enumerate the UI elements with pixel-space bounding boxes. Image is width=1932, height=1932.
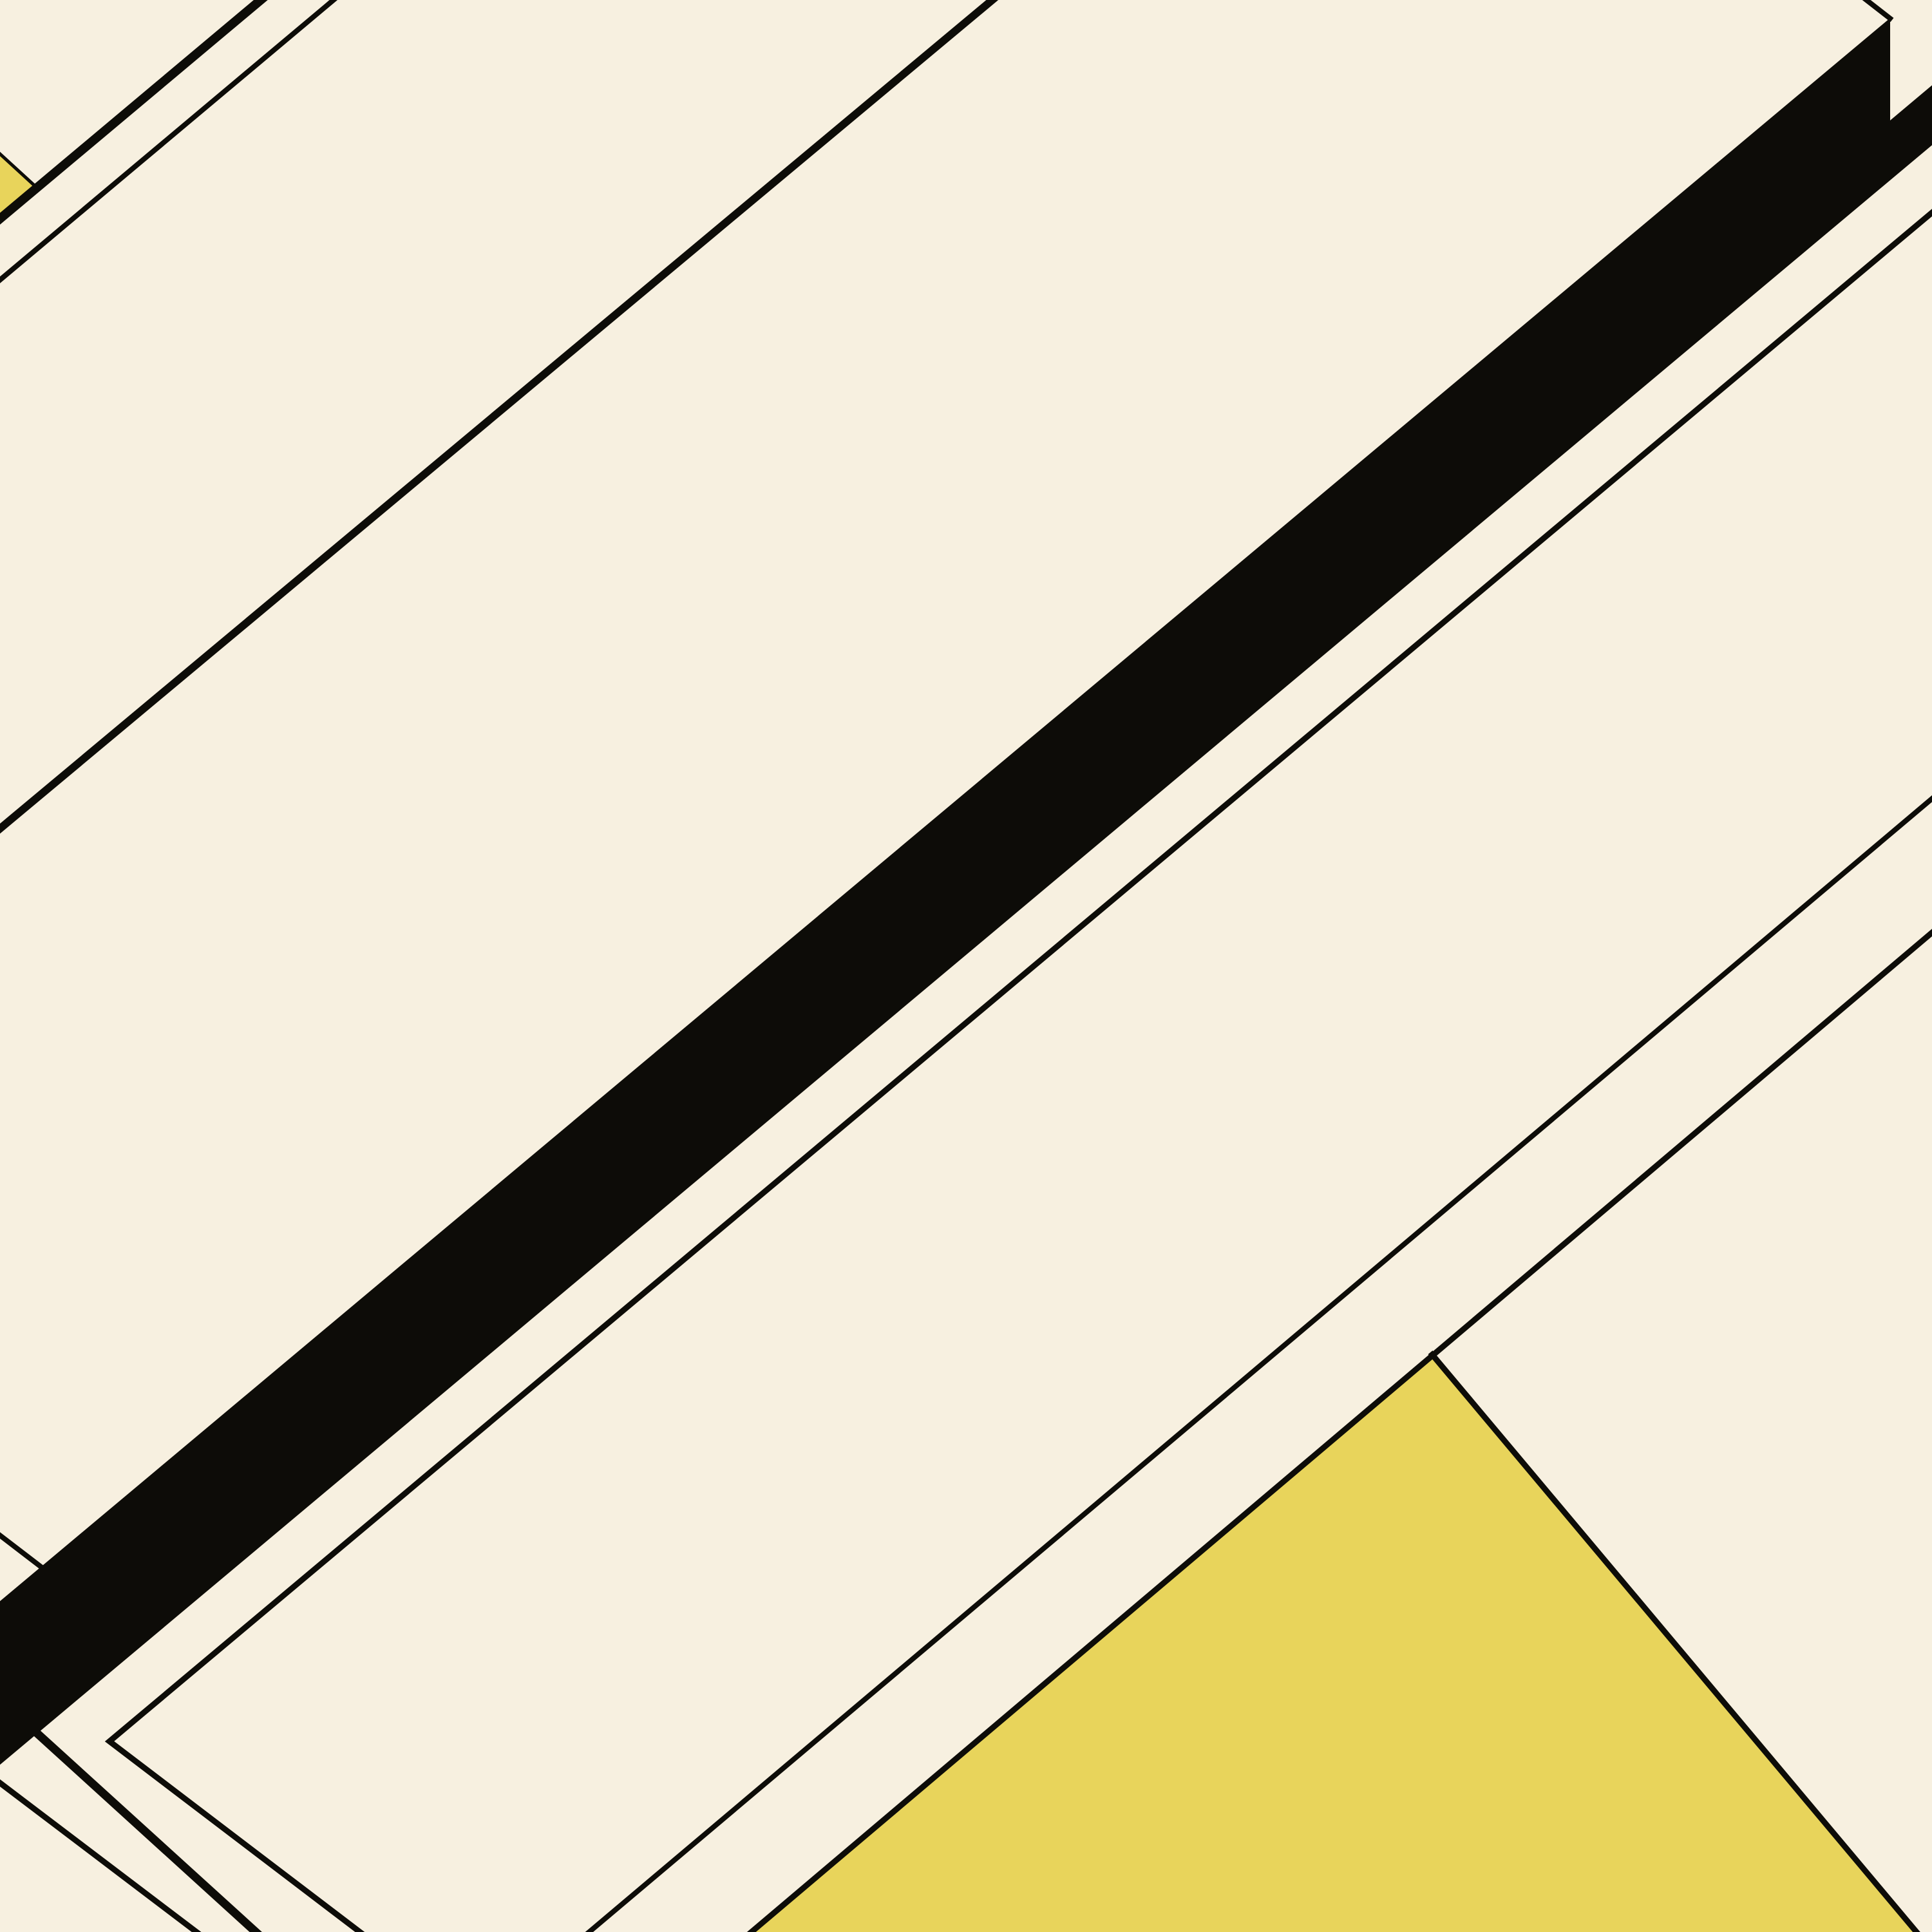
black-band	[0, 18, 1932, 1776]
artwork-canvas	[0, 0, 1932, 1932]
abstract-composition-svg	[0, 0, 1932, 1932]
diagonal-line-mid-upper	[0, 0, 997, 834]
diagonal-line-thin-upper-left	[0, 0, 338, 285]
diagonal-line-thick-upper-left	[0, 0, 265, 224]
band-notch-tick	[1863, 0, 1892, 20]
